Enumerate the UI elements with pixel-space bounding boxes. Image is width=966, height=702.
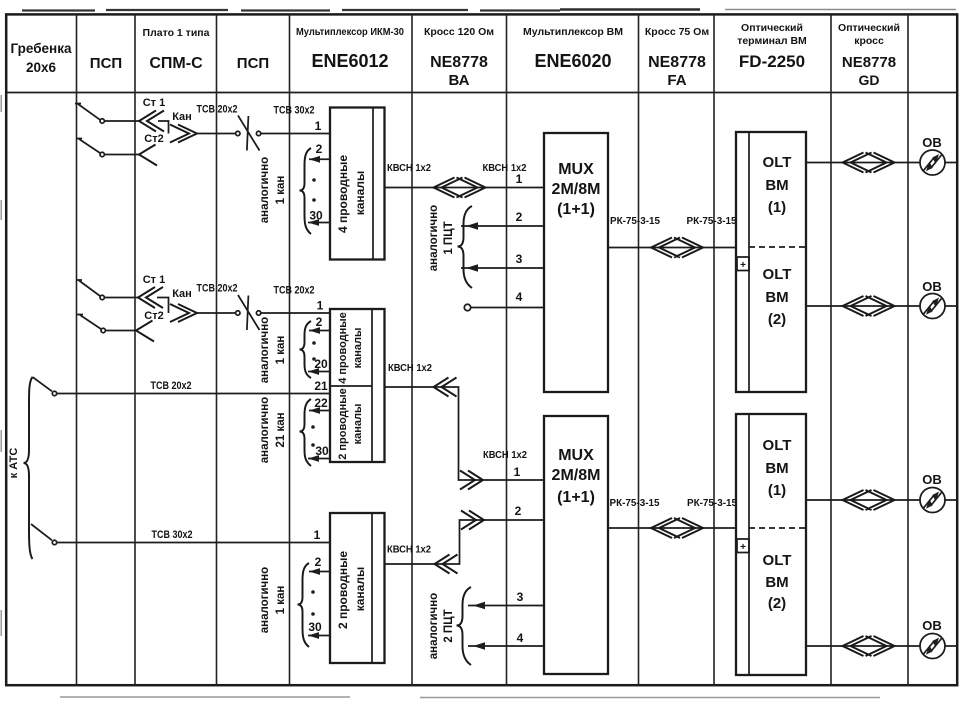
svg-text:1 ПЦТ: 1 ПЦТ [443, 221, 455, 254]
svg-text:ТСВ 20х2: ТСВ 20х2 [274, 285, 315, 297]
svg-text:(1): (1) [768, 482, 786, 499]
svg-text:NE8778: NE8778 [648, 54, 706, 71]
svg-text:2 проводные: 2 проводные [337, 388, 349, 460]
svg-text:ENE6020: ENE6020 [534, 51, 611, 71]
svg-text:(1): (1) [768, 199, 786, 216]
svg-text:3: 3 [517, 590, 524, 604]
svg-text:2: 2 [316, 315, 323, 329]
svg-text:кросс: кросс [854, 35, 884, 47]
svg-text:NE8778: NE8778 [430, 54, 488, 71]
svg-text:1: 1 [314, 528, 321, 542]
svg-text:4 проводные: 4 проводные [336, 155, 350, 233]
svg-text:ОВ: ОВ [922, 618, 942, 633]
svg-text:ТСВ 20х2: ТСВ 20х2 [151, 380, 192, 392]
svg-text:1: 1 [516, 172, 523, 186]
svg-text:каналы: каналы [353, 567, 367, 611]
svg-text:РК-75-3-15: РК-75-3-15 [610, 497, 660, 509]
svg-text:ВМ: ВМ [765, 289, 788, 306]
svg-text:Гребенка: Гребенка [11, 41, 72, 56]
svg-text:2 ПЦТ: 2 ПЦТ [443, 609, 455, 642]
svg-text:КВСН 1х2: КВСН 1х2 [387, 162, 431, 174]
svg-text:GD: GD [859, 72, 880, 88]
svg-text:ВМ: ВМ [765, 177, 788, 194]
svg-text:OLT: OLT [763, 154, 792, 171]
svg-text:каналы: каналы [352, 328, 364, 369]
svg-text:FA: FA [667, 72, 686, 89]
svg-text:OLT: OLT [763, 437, 792, 454]
svg-text:OLT: OLT [763, 552, 792, 569]
svg-text:MUX: MUX [558, 161, 594, 178]
svg-text:ПСП: ПСП [90, 55, 122, 72]
svg-text:20х6: 20х6 [26, 60, 57, 75]
svg-text:2М/8М: 2М/8М [552, 467, 601, 484]
svg-text:каналы: каналы [352, 404, 364, 445]
svg-text:Кан: Кан [172, 288, 192, 300]
svg-text:2М/8М: 2М/8М [552, 181, 601, 198]
svg-text:Мультиплексор ИКМ-30: Мультиплексор ИКМ-30 [296, 26, 404, 38]
svg-text:ВМ: ВМ [765, 460, 788, 477]
svg-text:ОВ: ОВ [922, 135, 942, 150]
svg-text:1: 1 [514, 465, 521, 479]
svg-text:NE8778: NE8778 [842, 54, 896, 71]
svg-text:РК-75-3-15: РК-75-3-15 [687, 215, 737, 227]
svg-text:20: 20 [314, 357, 328, 371]
svg-text:Оптический: Оптический [741, 22, 803, 34]
svg-text:Кан: Кан [172, 111, 192, 123]
svg-text:аналогично: аналогично [259, 317, 271, 383]
svg-text:КВСН 1х2: КВСН 1х2 [387, 544, 431, 556]
svg-text:каналы: каналы [353, 171, 367, 215]
svg-text:30: 30 [308, 620, 322, 634]
svg-text:ТСВ 20х2: ТСВ 20х2 [197, 283, 238, 295]
svg-text:Ст2: Ст2 [144, 133, 163, 145]
svg-text:+: + [740, 542, 746, 553]
svg-text:Ст 1: Ст 1 [143, 274, 166, 286]
svg-text:Кросс 75 Ом: Кросс 75 Ом [645, 26, 709, 38]
svg-text:2: 2 [516, 210, 523, 224]
svg-text:аналогично: аналогично [259, 397, 271, 463]
svg-text:КВСН 1х2: КВСН 1х2 [388, 362, 432, 374]
svg-text:MUX: MUX [558, 447, 594, 464]
svg-text:OLT: OLT [763, 266, 792, 283]
svg-text:2 проводные: 2 проводные [336, 551, 350, 629]
svg-text:1: 1 [317, 299, 324, 313]
svg-text:(2): (2) [768, 311, 786, 328]
svg-text:4: 4 [516, 290, 523, 304]
svg-text:аналогично: аналогично [259, 157, 271, 223]
svg-text:ОВ: ОВ [922, 279, 942, 294]
svg-text:(1+1): (1+1) [557, 489, 595, 506]
svg-text:ТСВ 30х2: ТСВ 30х2 [274, 105, 315, 117]
svg-text:2: 2 [515, 504, 522, 518]
svg-text:+: + [740, 260, 746, 271]
svg-text:ТСВ 20х2: ТСВ 20х2 [197, 104, 238, 116]
svg-text:аналогично: аналогично [428, 593, 440, 659]
svg-text:1: 1 [315, 119, 322, 133]
svg-text:ТСВ 30х2: ТСВ 30х2 [152, 529, 193, 541]
svg-text:ENE6012: ENE6012 [311, 51, 388, 71]
svg-text:(1+1): (1+1) [557, 201, 595, 218]
svg-text:2: 2 [315, 555, 322, 569]
svg-text:РК-75-3-15: РК-75-3-15 [610, 215, 660, 227]
svg-text:Плато 1 типа: Плато 1 типа [143, 27, 210, 39]
svg-text:ПСП: ПСП [237, 55, 269, 72]
svg-text:4: 4 [517, 631, 524, 645]
svg-text:FD-2250: FD-2250 [739, 52, 805, 71]
svg-text:аналогично: аналогично [428, 205, 440, 271]
svg-text:ОВ: ОВ [922, 472, 942, 487]
svg-text:аналогично: аналогично [259, 567, 271, 633]
svg-text:22: 22 [314, 396, 328, 410]
svg-text:Кросс 120 Ом: Кросс 120 Ом [424, 26, 494, 38]
svg-text:КВСН 1х2: КВСН 1х2 [483, 449, 527, 461]
svg-text:(2): (2) [768, 595, 786, 612]
svg-text:2: 2 [316, 142, 323, 156]
svg-text:Ст 1: Ст 1 [143, 97, 166, 109]
svg-text:ВА: ВА [449, 72, 470, 89]
svg-text:СПМ-С: СПМ-С [149, 55, 203, 72]
svg-text:к АТС: к АТС [8, 448, 20, 479]
svg-text:Мультиплексор ВМ: Мультиплексор ВМ [523, 26, 623, 38]
svg-text:РК-75-3-15: РК-75-3-15 [687, 497, 737, 509]
svg-text:1 кан: 1 кан [275, 586, 287, 615]
svg-text:1 кан: 1 кан [275, 176, 287, 205]
svg-text:Ст2: Ст2 [144, 310, 163, 322]
svg-text:4 проводные: 4 проводные [337, 312, 349, 384]
svg-text:ВМ: ВМ [765, 574, 788, 591]
svg-text:3: 3 [516, 252, 523, 266]
svg-text:21: 21 [314, 379, 328, 393]
svg-text:1 кан: 1 кан [275, 336, 287, 365]
svg-text:Оптический: Оптический [838, 22, 900, 34]
svg-text:терминал ВМ: терминал ВМ [737, 35, 807, 47]
svg-text:21 кан: 21 кан [275, 412, 287, 447]
